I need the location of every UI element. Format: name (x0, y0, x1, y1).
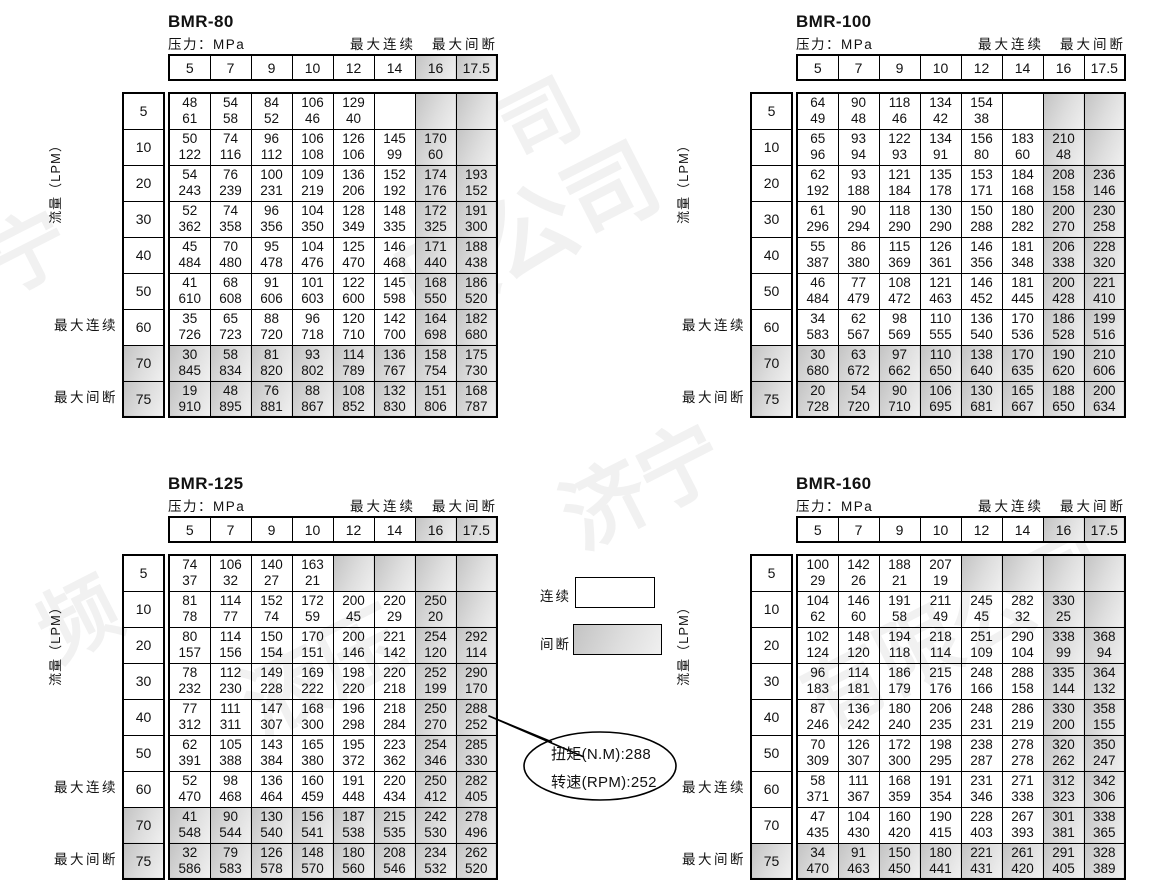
cell-speed-value: 200 (1044, 717, 1084, 733)
data-cell: 180282 (1002, 201, 1043, 237)
cell-speed-value: 528 (1044, 327, 1084, 343)
flow-header-cell: 60 (751, 309, 792, 345)
data-cell (1002, 93, 1043, 129)
table-subtitle-row: 压力：MPa最大连续最大间断 (668, 495, 1126, 511)
cell-speed-value: 295 (921, 753, 961, 769)
legend-continuous-label: 连续 (540, 585, 571, 605)
cell-speed-value: 307 (252, 717, 292, 733)
cell-torque-value: 165 (1003, 383, 1043, 399)
cell-speed-value: 42 (921, 111, 961, 127)
cell-torque-value: 125 (334, 239, 374, 255)
cell-speed-value: 158 (1044, 183, 1084, 199)
cell-speed-value: 470 (798, 861, 838, 877)
data-cell: 190620 (1043, 345, 1084, 381)
data-cell: 105388 (210, 735, 251, 771)
cell-torque-value: 132 (375, 383, 415, 399)
cell-torque-value: 114 (211, 629, 251, 645)
cell-torque-value: 170 (293, 629, 333, 645)
cell-speed-value: 806 (416, 399, 456, 415)
data-cell: 90710 (879, 381, 920, 417)
cell-speed-value: 230 (211, 681, 251, 697)
data-cell: 58371 (797, 771, 838, 807)
cell-speed-value: 235 (921, 717, 961, 733)
cell-speed-value: 258 (1085, 219, 1125, 235)
cell-speed-value: 116 (211, 147, 251, 163)
data-cell: 13491 (920, 129, 961, 165)
cell-speed-value: 448 (334, 789, 374, 805)
data-cell: 96356 (251, 201, 292, 237)
cell-speed-value: 262 (1044, 753, 1084, 769)
cell-torque-value: 110 (921, 347, 961, 363)
data-cell: 342306 (1084, 771, 1125, 807)
cell-torque-value: 47 (798, 809, 838, 825)
cell-torque-value: 220 (375, 593, 415, 609)
cell-torque-value: 122 (880, 131, 920, 147)
data-cell: 104350 (292, 201, 333, 237)
flow-header-cell: 60 (123, 771, 164, 807)
data-cell: 106695 (920, 381, 961, 417)
cell-torque-value: 146 (375, 239, 415, 255)
cell-speed-value: 380 (293, 753, 333, 769)
cell-torque-value: 143 (252, 737, 292, 753)
cell-torque-value: 104 (293, 203, 333, 219)
cell-torque-value: 171 (416, 239, 456, 255)
cell-torque-value: 121 (880, 167, 920, 183)
data-cell: 220218 (374, 663, 415, 699)
flow-header-cell: 30 (123, 663, 164, 699)
cell-speed-value: 548 (170, 825, 210, 841)
cell-speed-value: 231 (252, 183, 292, 199)
callout-torque-text: 扭矩(N.M):288 (551, 743, 651, 764)
flow-header-cell: 10 (123, 591, 164, 627)
data-cell: 358155 (1084, 699, 1125, 735)
data-cell: 110650 (920, 345, 961, 381)
data-cell: 12293 (879, 129, 920, 165)
cell-speed-value: 546 (375, 861, 415, 877)
cell-torque-value: 100 (252, 167, 292, 183)
cell-torque-value: 108 (334, 383, 374, 399)
data-cell: 160420 (879, 807, 920, 843)
data-cell: 290170 (456, 663, 497, 699)
data-cell (456, 591, 497, 627)
data-cell: 126307 (838, 735, 879, 771)
cell-speed-value: 120 (416, 645, 456, 661)
data-cell: 35726 (169, 309, 210, 345)
cell-torque-value: 278 (1003, 737, 1043, 753)
flow-header-cell: 75 (751, 843, 792, 879)
cell-speed-value: 438 (457, 255, 497, 271)
cell-torque-value: 328 (1085, 845, 1125, 861)
data-cell: 142700 (374, 309, 415, 345)
cell-speed-value: 19 (921, 573, 961, 589)
pressure-header-table: 5791012141617.5 (168, 516, 498, 543)
cell-speed-value: 463 (921, 291, 961, 307)
cell-speed-value: 570 (293, 861, 333, 877)
cell-torque-value: 146 (962, 239, 1002, 255)
cell-speed-value: 154 (252, 645, 292, 661)
cell-torque-value: 93 (839, 131, 879, 147)
data-cell: 158754 (415, 345, 456, 381)
cell-speed-value: 171 (962, 183, 1002, 199)
cell-speed-value: 228 (252, 681, 292, 697)
data-cell: 126361 (920, 237, 961, 273)
data-cell: 312323 (1043, 771, 1084, 807)
data-cell: 251109 (961, 627, 1002, 663)
cell-torque-value: 254 (416, 629, 456, 645)
data-cell: 200146 (333, 627, 374, 663)
flow-axis-label: 流量（LPM） (673, 583, 691, 703)
data-cell: 186520 (456, 273, 497, 309)
cell-speed-value: 29 (375, 609, 415, 625)
cell-torque-value: 187 (334, 809, 374, 825)
flow-header-cell: 50 (751, 273, 792, 309)
pressure-header-table: 5791012141617.5 (796, 54, 1126, 81)
cell-torque-value: 64 (798, 95, 838, 111)
data-cell (456, 129, 497, 165)
cell-torque-value: 50 (170, 131, 210, 147)
cell-torque-value: 150 (962, 203, 1002, 219)
cell-torque-value (1003, 557, 1043, 573)
cell-torque-value: 20 (798, 383, 838, 399)
cell-speed-value: 362 (170, 219, 210, 235)
data-cell: 52470 (169, 771, 210, 807)
cell-torque-value: 200 (1085, 383, 1125, 399)
cell-torque-value: 200 (334, 629, 374, 645)
cell-torque-value: 301 (1044, 809, 1084, 825)
data-cell: 191300 (456, 201, 497, 237)
flow-header-cell: 50 (123, 273, 164, 309)
data-cell: 18360 (1002, 129, 1043, 165)
cell-speed-value: 635 (1003, 363, 1043, 379)
data-cell: 93188 (838, 165, 879, 201)
data-cell: 271338 (1002, 771, 1043, 807)
cell-speed-value: 723 (211, 327, 251, 343)
data-cell: 21149 (920, 591, 961, 627)
data-cell: 36894 (1084, 627, 1125, 663)
cell-torque-value: 221 (962, 845, 1002, 861)
cell-torque-value: 245 (962, 593, 1002, 609)
data-cell: 70480 (210, 237, 251, 273)
pressure-header-cell: 9 (251, 517, 292, 542)
flow-header-cell: 20 (751, 165, 792, 201)
data-cell: 100231 (251, 165, 292, 201)
cell-torque-value: 97 (880, 347, 920, 363)
data-cell: 90544 (210, 807, 251, 843)
data-cell: 61296 (797, 201, 838, 237)
bmr-125-table-block: BMR-125压力：MPa最大连续最大间断5791012141617.55102… (40, 476, 498, 882)
data-cell: 186179 (879, 663, 920, 699)
cell-speed-value: 206 (334, 183, 374, 199)
cell-speed-value: 567 (839, 327, 879, 343)
data-cell: 150154 (251, 627, 292, 663)
data-cell: 195372 (333, 735, 374, 771)
data-cell: 138640 (961, 345, 1002, 381)
data-cell: 46484 (797, 273, 838, 309)
cell-speed-value: 367 (839, 789, 879, 805)
data-cell: 54720 (838, 381, 879, 417)
cell-torque-value: 34 (798, 311, 838, 327)
cell-torque-value: 46 (798, 275, 838, 291)
data-cell: 171440 (415, 237, 456, 273)
cell-speed-value: 152 (457, 183, 497, 199)
data-cell: 278278 (1002, 735, 1043, 771)
flow-header-cell: 30 (751, 201, 792, 237)
cell-speed-value: 620 (1044, 363, 1084, 379)
cell-torque-value: 290 (1003, 629, 1043, 645)
cell-speed-value: 452 (962, 291, 1002, 307)
cell-torque-value: 220 (375, 665, 415, 681)
data-cell: 81820 (251, 345, 292, 381)
cell-torque-value: 182 (457, 311, 497, 327)
cell-torque-value: 180 (1003, 203, 1043, 219)
cell-torque-value: 78 (170, 665, 210, 681)
flow-header-cell: 5 (123, 93, 164, 129)
flow-header-cell: 20 (751, 627, 792, 663)
data-cell: 74116 (210, 129, 251, 165)
cell-speed-value: 49 (798, 111, 838, 127)
cell-speed-value: 718 (293, 327, 333, 343)
data-cell: 223362 (374, 735, 415, 771)
cell-speed-value: 104 (1003, 645, 1043, 661)
data-cell: 114181 (838, 663, 879, 699)
cell-torque-value: 74 (211, 131, 251, 147)
cell-speed-value: 372 (334, 753, 374, 769)
cell-speed-value (1003, 111, 1043, 127)
cell-speed-value: 20 (416, 609, 456, 625)
data-cell: 33899 (1043, 627, 1084, 663)
cell-torque-value: 183 (1003, 131, 1043, 147)
data-cell: 148570 (292, 843, 333, 879)
pressure-header-cell: 9 (251, 55, 292, 80)
cell-speed-value: 132 (1085, 681, 1125, 697)
cell-speed-value: 362 (375, 753, 415, 769)
cell-torque-value: 121 (921, 275, 961, 291)
data-cell (415, 555, 456, 591)
cell-speed-value: 412 (416, 789, 456, 805)
cell-speed-value: 405 (1044, 861, 1084, 877)
cell-torque-value: 114 (334, 347, 374, 363)
cell-torque-value: 109 (293, 167, 333, 183)
cell-speed-value: 496 (457, 825, 497, 841)
cell-speed-value: 219 (293, 183, 333, 199)
cell-torque-value: 112 (211, 665, 251, 681)
data-cell: 19158 (879, 591, 920, 627)
data-cell: 146356 (961, 237, 1002, 273)
cell-torque-value: 168 (416, 275, 456, 291)
data-cell: 182680 (456, 309, 497, 345)
data-cell: 58834 (210, 345, 251, 381)
data-cell: 15438 (961, 93, 1002, 129)
data-cell: 228320 (1084, 237, 1125, 273)
cell-speed-value (962, 573, 1002, 589)
cell-speed-value: 700 (375, 327, 415, 343)
data-cell: 128349 (333, 201, 374, 237)
cell-speed-value: 598 (375, 291, 415, 307)
data-cell: 136767 (374, 345, 415, 381)
cell-speed-value: 27 (252, 573, 292, 589)
cell-speed-value: 361 (921, 255, 961, 271)
cell-speed-value: 802 (293, 363, 333, 379)
cell-torque-value: 172 (416, 203, 456, 219)
cell-speed-value: 77 (211, 609, 251, 625)
cell-speed-value: 420 (880, 825, 920, 841)
legend-intermittent-label: 间断 (540, 633, 571, 653)
data-cell: 180560 (333, 843, 374, 879)
cell-torque-value: 130 (252, 809, 292, 825)
flow-header-cell: 20 (123, 165, 164, 201)
flow-header-cell: 5 (123, 555, 164, 591)
cell-torque-value: 142 (839, 557, 879, 573)
cell-torque-value: 90 (839, 95, 879, 111)
flow-header-cell: 60 (751, 771, 792, 807)
cell-torque-value: 262 (457, 845, 497, 861)
cell-torque-value: 188 (880, 557, 920, 573)
cell-speed-value: 320 (1085, 255, 1125, 271)
cell-speed-value: 478 (252, 255, 292, 271)
data-cell: 76239 (210, 165, 251, 201)
cell-torque-value: 170 (416, 131, 456, 147)
cell-speed-value: 46 (293, 111, 333, 127)
cell-torque-value: 248 (962, 701, 1002, 717)
cell-torque-value: 250 (416, 773, 456, 789)
data-cell: 335144 (1043, 663, 1084, 699)
cell-speed-value: 93 (880, 147, 920, 163)
data-cell: 96718 (292, 309, 333, 345)
cell-torque-value: 186 (1044, 311, 1084, 327)
data-cell: 181348 (1002, 237, 1043, 273)
max-continuous-top-label: 最大连续 (978, 495, 1044, 515)
data-cell: 215535 (374, 807, 415, 843)
data-cell: 34470 (797, 843, 838, 879)
cell-speed-value: 290 (921, 219, 961, 235)
cell-torque-value: 335 (1044, 665, 1084, 681)
cell-speed-value: 312 (170, 717, 210, 733)
cell-speed-value: 640 (962, 363, 1002, 379)
data-cell (456, 555, 497, 591)
cell-speed-value: 61 (170, 111, 210, 127)
data-cell: 130290 (920, 201, 961, 237)
data-cell: 20719 (920, 555, 961, 591)
data-cell: 10646 (292, 93, 333, 129)
data-cell: 165667 (1002, 381, 1043, 417)
cell-torque-value: 152 (375, 167, 415, 183)
max-intermittent-side-label: 最大间断 (40, 842, 118, 878)
cell-speed-value: 270 (416, 717, 456, 733)
flow-header-cell: 10 (751, 129, 792, 165)
cell-torque-value: 198 (334, 665, 374, 681)
performance-data-table: 6449904811846134421543865969394122931349… (796, 92, 1126, 418)
pressure-unit-label: 压力：MPa (168, 33, 245, 53)
data-cell: 86380 (838, 237, 879, 273)
pressure-header-cell: 10 (292, 55, 333, 80)
cell-torque-value: 145 (375, 131, 415, 147)
cell-torque-value: 52 (170, 203, 210, 219)
bmr-160-table-block: BMR-160压力：MPa最大连续最大间断5791012141617.55102… (668, 476, 1126, 882)
cell-speed-value: 730 (457, 363, 497, 379)
cell-speed-value: 610 (170, 291, 210, 307)
max-intermittent-top-label: 最大间断 (1060, 33, 1126, 53)
cell-torque-value: 165 (293, 737, 333, 753)
cell-torque-value: 77 (839, 275, 879, 291)
cell-torque-value: 320 (1044, 737, 1084, 753)
cell-torque-value: 160 (293, 773, 333, 789)
data-cell: 114789 (333, 345, 374, 381)
cell-torque-value: 136 (375, 347, 415, 363)
cell-torque-value: 70 (798, 737, 838, 753)
cell-torque-value: 58 (211, 347, 251, 363)
cell-speed-value: 583 (211, 861, 251, 877)
cell-torque-value: 140 (252, 557, 292, 573)
cell-speed-value: 338 (1003, 789, 1043, 805)
cell-speed-value: 346 (962, 789, 1002, 805)
cell-torque-value: 228 (1085, 239, 1125, 255)
cell-torque-value: 223 (375, 737, 415, 753)
cell-torque-value: 250 (416, 701, 456, 717)
data-cell: 186528 (1043, 309, 1084, 345)
cell-torque-value: 172 (293, 593, 333, 609)
cell-speed-value: 516 (1085, 327, 1125, 343)
data-cell: 170635 (1002, 345, 1043, 381)
cell-speed-value: 58 (880, 609, 920, 625)
max-continuous-side-label: 最大连续 (40, 770, 118, 806)
cell-speed-value: 247 (1085, 753, 1125, 769)
cell-speed-value: 243 (170, 183, 210, 199)
data-cell: 191448 (333, 771, 374, 807)
data-cell: 109219 (292, 165, 333, 201)
cell-torque-value: 236 (1085, 167, 1125, 183)
cell-torque-value: 184 (1003, 167, 1043, 183)
data-cell: 145598 (374, 273, 415, 309)
data-cell: 78232 (169, 663, 210, 699)
flow-header-cell: 40 (123, 237, 164, 273)
cell-speed-value: 380 (839, 255, 879, 271)
data-cell: 14660 (838, 591, 879, 627)
cell-speed-value: 184 (880, 183, 920, 199)
cell-torque-value: 130 (921, 203, 961, 219)
pressure-header-cell: 7 (210, 517, 251, 542)
max-continuous-side-label: 最大连续 (668, 308, 746, 344)
data-cell: 55387 (797, 237, 838, 273)
data-cell: 15680 (961, 129, 1002, 165)
cell-speed-value: 450 (880, 861, 920, 877)
cell-torque-value: 221 (1085, 275, 1125, 291)
cell-speed-value: 146 (334, 645, 374, 661)
legend-continuous-swatch (575, 577, 655, 608)
cell-speed-value: 381 (1044, 825, 1084, 841)
cell-speed-value: 40 (334, 111, 374, 127)
data-cell: 221431 (961, 843, 1002, 879)
cell-speed-value: 112 (252, 147, 292, 163)
data-cell (1084, 93, 1125, 129)
cell-torque-value: 136 (334, 167, 374, 183)
pressure-header-cell: 7 (838, 517, 879, 542)
data-cell: 292114 (456, 627, 497, 663)
cell-torque-value: 230 (1085, 203, 1125, 219)
cell-speed-value: 428 (1044, 291, 1084, 307)
cell-torque-value: 122 (334, 275, 374, 291)
flow-axis-label: 流量（LPM） (45, 121, 63, 241)
pressure-header-cell: 17.5 (1084, 55, 1125, 80)
table-title: BMR-160 (796, 474, 872, 494)
cell-torque-value: 106 (293, 131, 333, 147)
cell-speed-value (416, 111, 456, 127)
pressure-header-table: 5791012141617.5 (796, 516, 1126, 543)
cell-speed-value: 282 (1003, 219, 1043, 235)
cell-speed-value: 867 (293, 399, 333, 415)
cell-torque-value: 96 (798, 665, 838, 681)
data-cell: 22029 (374, 591, 415, 627)
cell-speed-value: 170 (457, 681, 497, 697)
